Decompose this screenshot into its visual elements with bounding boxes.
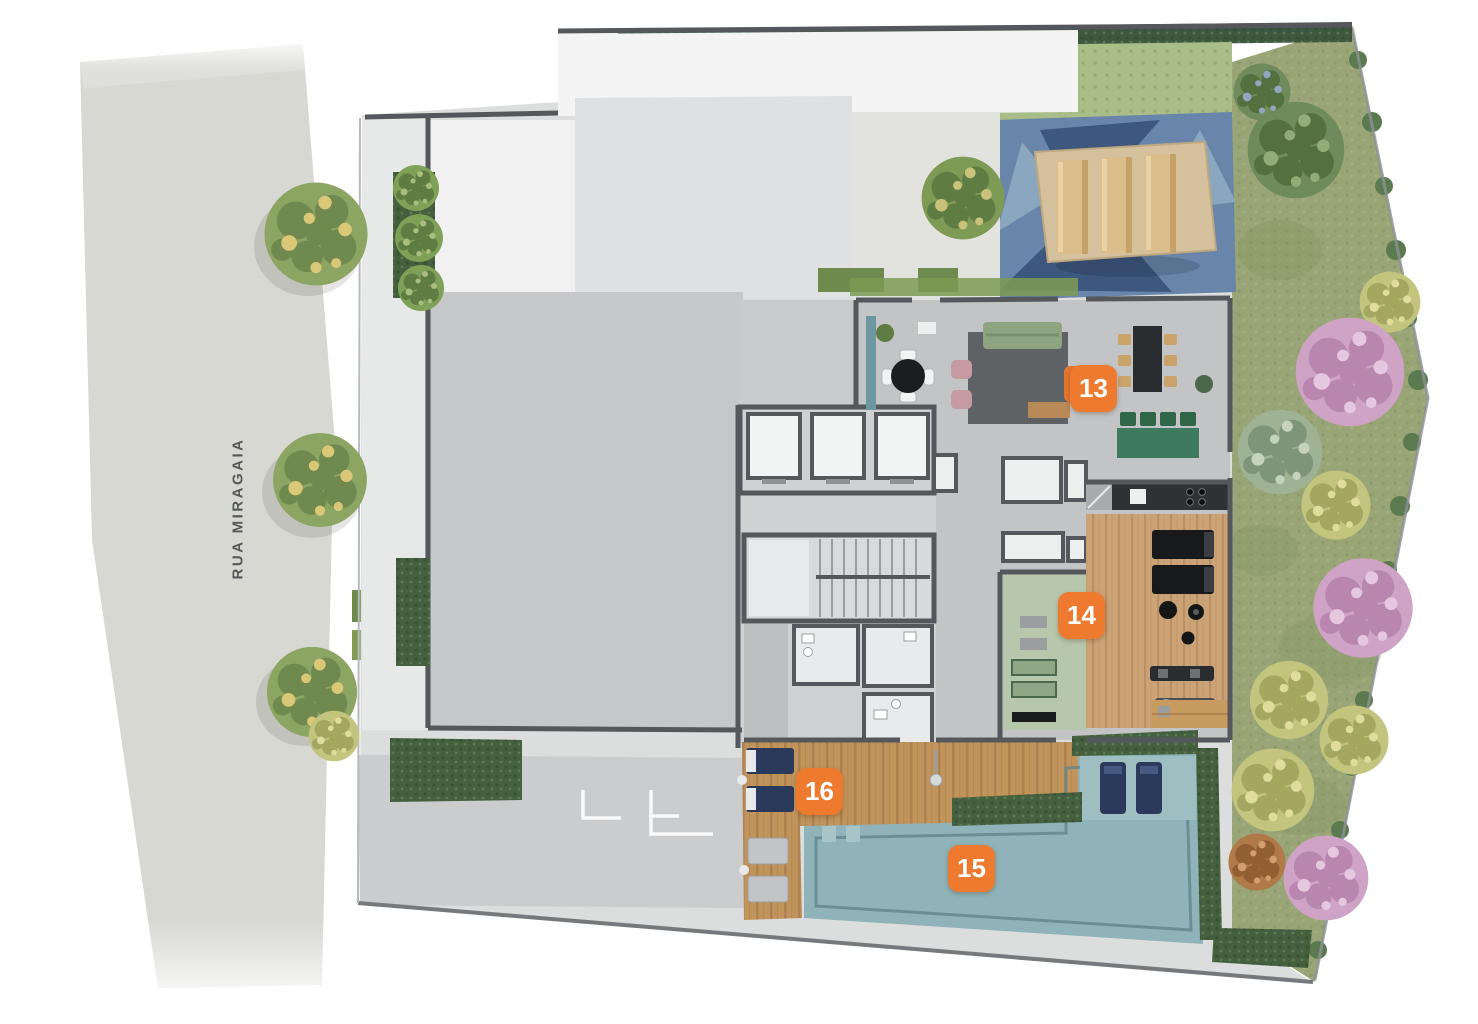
- flowering-tree: [1296, 318, 1405, 427]
- palm-planting: [395, 214, 443, 262]
- planter-pot: [876, 324, 894, 342]
- playground-deck: [982, 108, 1236, 300]
- lounge-armchair: [951, 360, 972, 379]
- garden-tree: [1250, 661, 1328, 739]
- marker-14: 14: [1058, 592, 1105, 639]
- garden-tree: [1233, 63, 1290, 120]
- marker-16: 16: [796, 768, 843, 815]
- central-slab: [425, 292, 743, 728]
- hedge-strip: [850, 278, 1078, 296]
- shrub: [309, 711, 360, 762]
- lounge-side-table: [1028, 402, 1070, 418]
- street-name-label: RUA MIRAGAIA: [230, 421, 247, 597]
- garden-tree: [1302, 471, 1371, 540]
- flowering-tree: [1313, 558, 1412, 657]
- stairwell: [744, 535, 934, 621]
- kitchen-counter: [1086, 484, 1230, 510]
- play-structure-logs: [1056, 154, 1177, 254]
- marker-15: 15: [948, 845, 995, 892]
- lounge-armchair: [951, 390, 972, 409]
- floor-plan-illustration: [0, 0, 1478, 1024]
- street-tree: [264, 182, 367, 285]
- dining-set: [1118, 326, 1177, 392]
- garden-tree: [1232, 749, 1315, 832]
- rust-shrub: [1228, 833, 1285, 890]
- palm-planting: [398, 265, 444, 311]
- site-plan-canvas: RUA MIRAGAIA 13 14 15 16: [0, 0, 1478, 1024]
- planter-pot: [1195, 375, 1213, 393]
- street-tree: [273, 433, 367, 527]
- water-feature-wall: [866, 316, 876, 410]
- garden-tree: [1320, 706, 1389, 775]
- courtyard-tree: [922, 157, 1005, 240]
- palm-planting: [393, 165, 439, 211]
- flowering-tree: [1284, 836, 1369, 921]
- marker-13: 13: [1070, 365, 1117, 412]
- console-table: [918, 322, 936, 334]
- garden-tree: [1238, 410, 1323, 495]
